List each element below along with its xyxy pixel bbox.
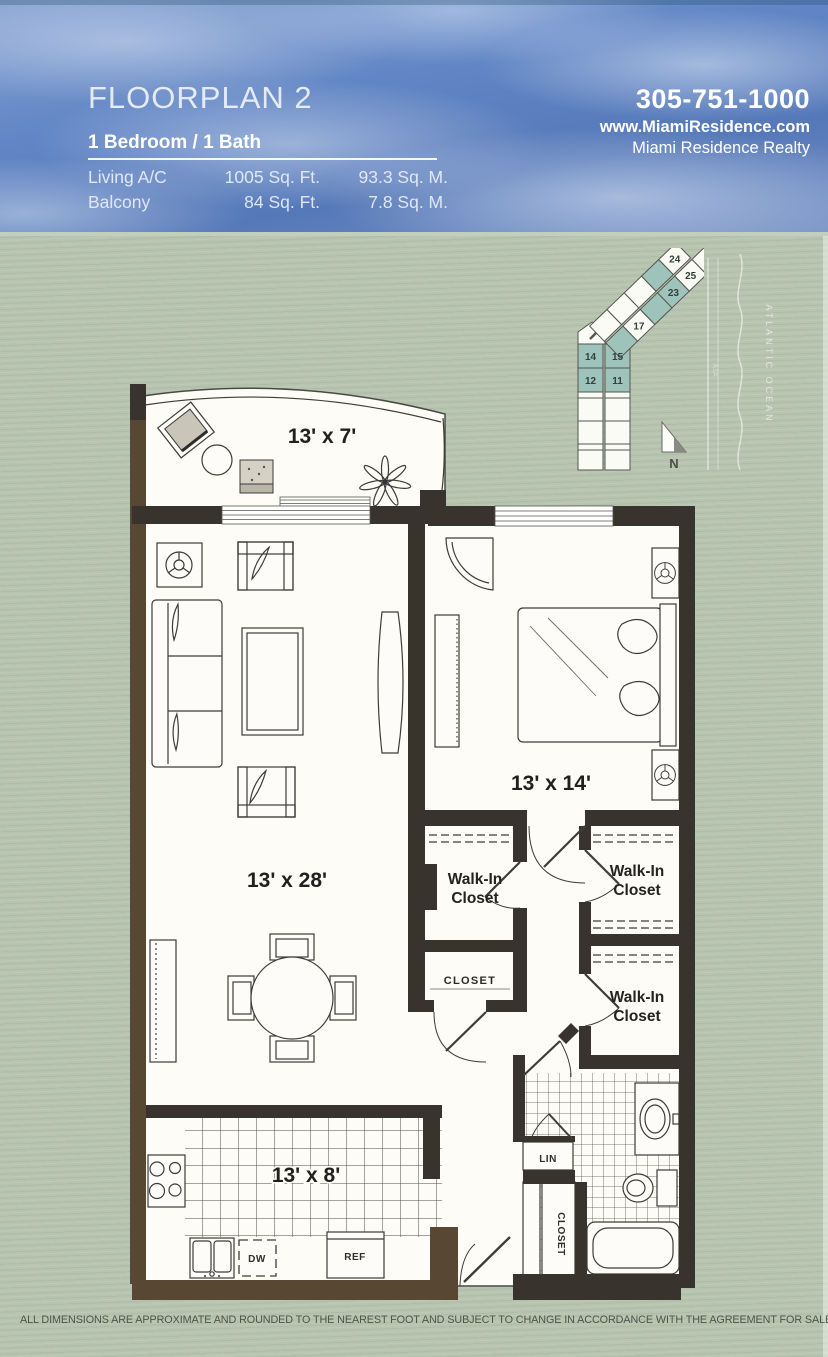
end-table-lamp [157, 543, 202, 587]
floorplan-drawing: DW REF [130, 378, 695, 1300]
dishwasher-label: DW [248, 1254, 266, 1265]
tv-console [378, 612, 403, 753]
keyplan-angled-wing: 17 23 24 25 [590, 248, 704, 358]
unit-11: 11 [612, 376, 623, 387]
page-title: FLOORPLAN 2 [88, 80, 313, 116]
refrigerator: REF [327, 1232, 384, 1278]
ocean-label: ATLANTIC OCEAN [764, 304, 774, 423]
area-row-balcony: Balcony 84 Sq. Ft. 7.8 Sq. M. [88, 190, 448, 215]
walkin-closet-2-label2: Closet [613, 882, 660, 899]
area-table: Living A/C 1005 Sq. Ft. 93.3 Sq. M. Balc… [88, 165, 448, 215]
armchair-top [238, 542, 293, 590]
area-label: Living A/C [88, 165, 206, 190]
pillow [620, 681, 659, 715]
dining-table [251, 957, 333, 1039]
kitchen-dimension-label: 13' x 8' [272, 1164, 340, 1187]
website-url: www.MiamiResidence.com [600, 118, 810, 137]
road-label: A1A [711, 363, 718, 377]
shoreline-graphic: A1A ATLANTIC OCEAN [698, 252, 828, 476]
header-banner: FLOORPLAN 2 1 Bedroom / 1 Bath Living A/… [0, 0, 828, 236]
area-label: Balcony [88, 190, 206, 215]
entry-closet-label: CLOSET [555, 1212, 566, 1256]
sofa [152, 600, 222, 767]
kitchen-sink [190, 1238, 234, 1278]
unit-14: 14 [585, 352, 597, 363]
pillow [618, 619, 657, 653]
linen-label: LIN [539, 1154, 557, 1165]
walkin-closet-3-label2: Closet [613, 1008, 660, 1025]
area-sqm: 93.3 Sq. M. [320, 165, 448, 190]
dishwasher: DW [239, 1240, 276, 1276]
contact-block: 305-751-1000 www.MiamiResidence.com Miam… [600, 84, 810, 158]
scan-edge-artifact [823, 236, 828, 1357]
bedroom-dimension-label: 13' x 14' [511, 772, 591, 795]
area-sqft: 1005 Sq. Ft. [206, 165, 320, 190]
walkin-closet-1-label: Walk-In [448, 871, 503, 888]
unit-24: 24 [669, 255, 681, 266]
building-keyplan: 17 23 24 25 14 15 12 11 N [570, 248, 704, 472]
stove [148, 1155, 185, 1207]
bed-bath-subtitle: 1 Bedroom / 1 Bath [88, 132, 261, 154]
unit-15: 15 [612, 352, 624, 363]
balcony-dimension-label: 13' x 7' [288, 425, 356, 448]
company-name: Miami Residence Realty [600, 139, 810, 158]
unit-25: 25 [685, 271, 697, 282]
bed [518, 604, 676, 746]
unit-12: 12 [585, 376, 597, 387]
keyplan-cells: 17 23 24 25 [578, 248, 704, 470]
unit-17: 17 [633, 321, 645, 332]
hall-closet-label: CLOSET [444, 975, 496, 987]
unit-23: 23 [668, 288, 680, 299]
entry-door-leaf-panel [523, 1182, 540, 1280]
nightstand-top [652, 548, 679, 598]
shoreline-wave [738, 254, 742, 470]
north-label: N [669, 456, 678, 471]
phone-number: 305-751-1000 [600, 84, 810, 115]
refrigerator-label: REF [344, 1252, 366, 1263]
armchair-bottom [238, 767, 295, 817]
balcony-chair [240, 460, 273, 493]
walkin-closet-3-label: Walk-In [610, 989, 665, 1006]
area-sqft: 84 Sq. Ft. [206, 190, 320, 215]
walkin-closet-2-label: Walk-In [610, 863, 665, 880]
vanity-sink [635, 1083, 679, 1155]
north-arrow-icon: N [662, 422, 686, 471]
living-dimension-label: 13' x 28' [247, 869, 327, 892]
nightstand-bottom [652, 750, 679, 800]
dresser [435, 615, 459, 747]
balcony-table [202, 445, 232, 475]
walkin-closet-1-label2: Closet [451, 890, 498, 907]
bathtub [587, 1222, 679, 1274]
sideboard [150, 940, 176, 1062]
header-divider [88, 158, 437, 160]
area-sqm: 7.8 Sq. M. [320, 190, 448, 215]
disclaimer-text: ALL DIMENSIONS ARE APPROXIMATE AND ROUND… [20, 1314, 812, 1326]
coffee-table [242, 628, 303, 735]
area-row-living: Living A/C 1005 Sq. Ft. 93.3 Sq. M. [88, 165, 448, 190]
